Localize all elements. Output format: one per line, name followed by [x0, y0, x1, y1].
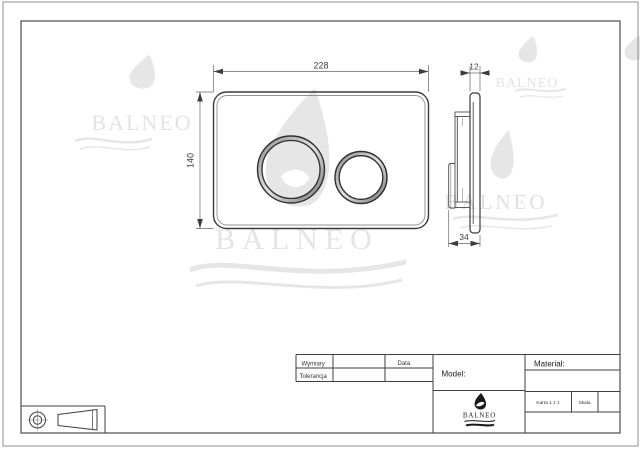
wymiary-label: Wymiary [302, 362, 325, 368]
dimension-total-depth: 34 [449, 210, 480, 247]
projection-symbol [21, 406, 105, 433]
title-block: Wymiary Tolerancja Data Model: Materiał:… [296, 355, 620, 434]
small-button-outer-ring [335, 152, 387, 204]
balneo-leaf-icon [491, 130, 514, 178]
skala-label: Skala [579, 400, 591, 406]
thickness-dimension-value: 12 [469, 62, 479, 72]
small-button-inner-ring [339, 156, 383, 200]
wave-icon [460, 226, 552, 229]
wave-icon [453, 215, 558, 220]
balneo-leaf-icon [266, 88, 330, 206]
projection-frustum-icon [58, 410, 97, 431]
tolerancja-label: Tolerancja [300, 374, 328, 380]
model-label: Model: [442, 370, 466, 379]
wave-icon [520, 96, 563, 98]
wave-icon [190, 262, 406, 271]
balneo-logo-leaf-icon [475, 393, 487, 409]
wave-icon [80, 147, 150, 150]
balneo-watermark-center: BALNEO [190, 88, 406, 287]
wave-icon [75, 139, 152, 143]
dimension-plate-thickness: 12 [462, 62, 489, 92]
data-label: Data [398, 361, 411, 367]
balneo-logo: BALNEO [463, 393, 496, 426]
balneo-watermark-top-left: BALNEO [75, 55, 193, 150]
balneo-watermark-right: BALNEO [444, 130, 558, 229]
watermark-brand-text: BALNEO [91, 110, 192, 135]
balneo-logo-wave [465, 421, 496, 422]
width-dimension-value: 228 [313, 61, 328, 71]
balneo-leaf-icon [519, 36, 538, 62]
balneo-leaf-icon [130, 55, 156, 89]
wave-icon [196, 280, 402, 287]
technical-drawing: BALNEO BALNEO BALNEO BALNEO [0, 0, 640, 453]
drawing-sheet: BALNEO BALNEO BALNEO BALNEO [0, 0, 640, 453]
watermark-layer: BALNEO BALNEO BALNEO BALNEO [75, 35, 640, 287]
material-label: Materiał: [534, 360, 565, 369]
dimension-plate-width: 228 [214, 61, 429, 93]
depth-dimension-value: 34 [459, 232, 469, 242]
balneo-logo-wave [466, 425, 494, 426]
height-dimension-value: 140 [186, 153, 196, 168]
balneo-logo-text: BALNEO [463, 412, 496, 420]
karta-label: Karta 1 z 1 [536, 400, 560, 406]
balneo-watermark-top-right: BALNEO [496, 36, 566, 97]
small-flush-button [335, 152, 387, 204]
